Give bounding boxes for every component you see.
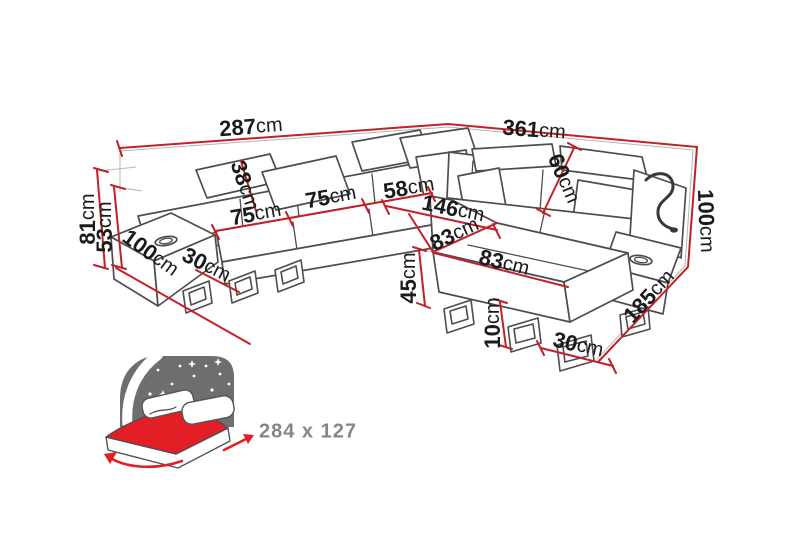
leg-frame xyxy=(444,300,474,333)
reading-lamp-head xyxy=(670,227,678,232)
dim-label-seat-height: 45cm xyxy=(396,252,421,303)
dim-label-right-side-height: 100cm xyxy=(693,189,720,253)
sofa-dimension-diagram: 287cm 361cm 81cm 53cm 100cm 30cm 38cm 75… xyxy=(0,0,800,533)
right-headrest-cushion-1 xyxy=(472,144,556,171)
dim-label-leg-height: 10cm xyxy=(480,297,505,348)
dim-label-top-right-width: 361cm xyxy=(502,114,567,144)
dim-label-armrest-height: 53cm xyxy=(92,201,117,252)
sofa-bed-icon xyxy=(104,355,254,468)
diagram-canvas: 287cm 361cm 81cm 53cm 100cm 30cm 38cm 75… xyxy=(0,0,800,533)
unfold-arrow-left-head xyxy=(104,452,117,464)
dim-label-top-left-width: 287cm xyxy=(218,112,283,141)
leg-frame xyxy=(508,318,541,352)
sleeping-area-size: 284 x 127 xyxy=(259,420,357,442)
